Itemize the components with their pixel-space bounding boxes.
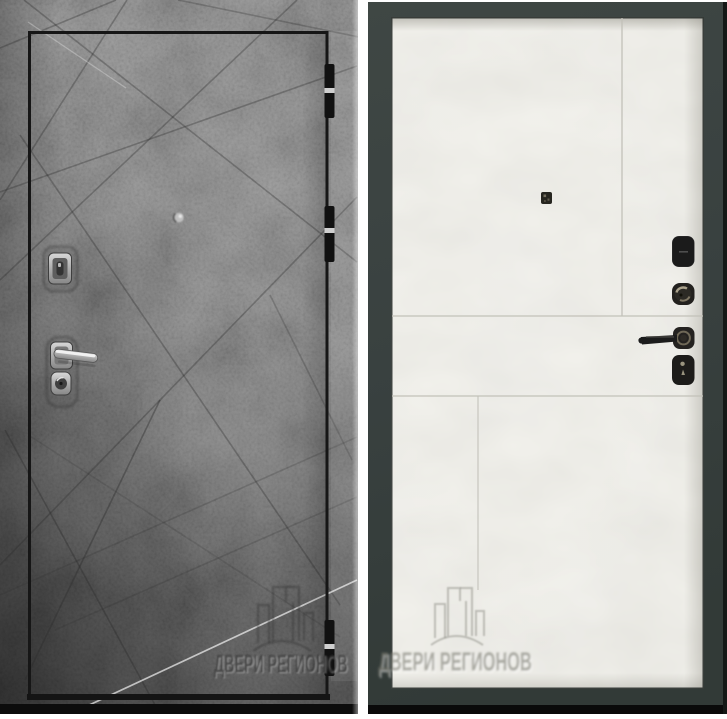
svg-text:ДВЕРИ РЕГИОНОВ: ДВЕРИ РЕГИОНОВ <box>214 652 348 679</box>
svg-text:ДВЕРИ РЕГИОНОВ: ДВЕРИ РЕГИОНОВ <box>378 647 532 677</box>
